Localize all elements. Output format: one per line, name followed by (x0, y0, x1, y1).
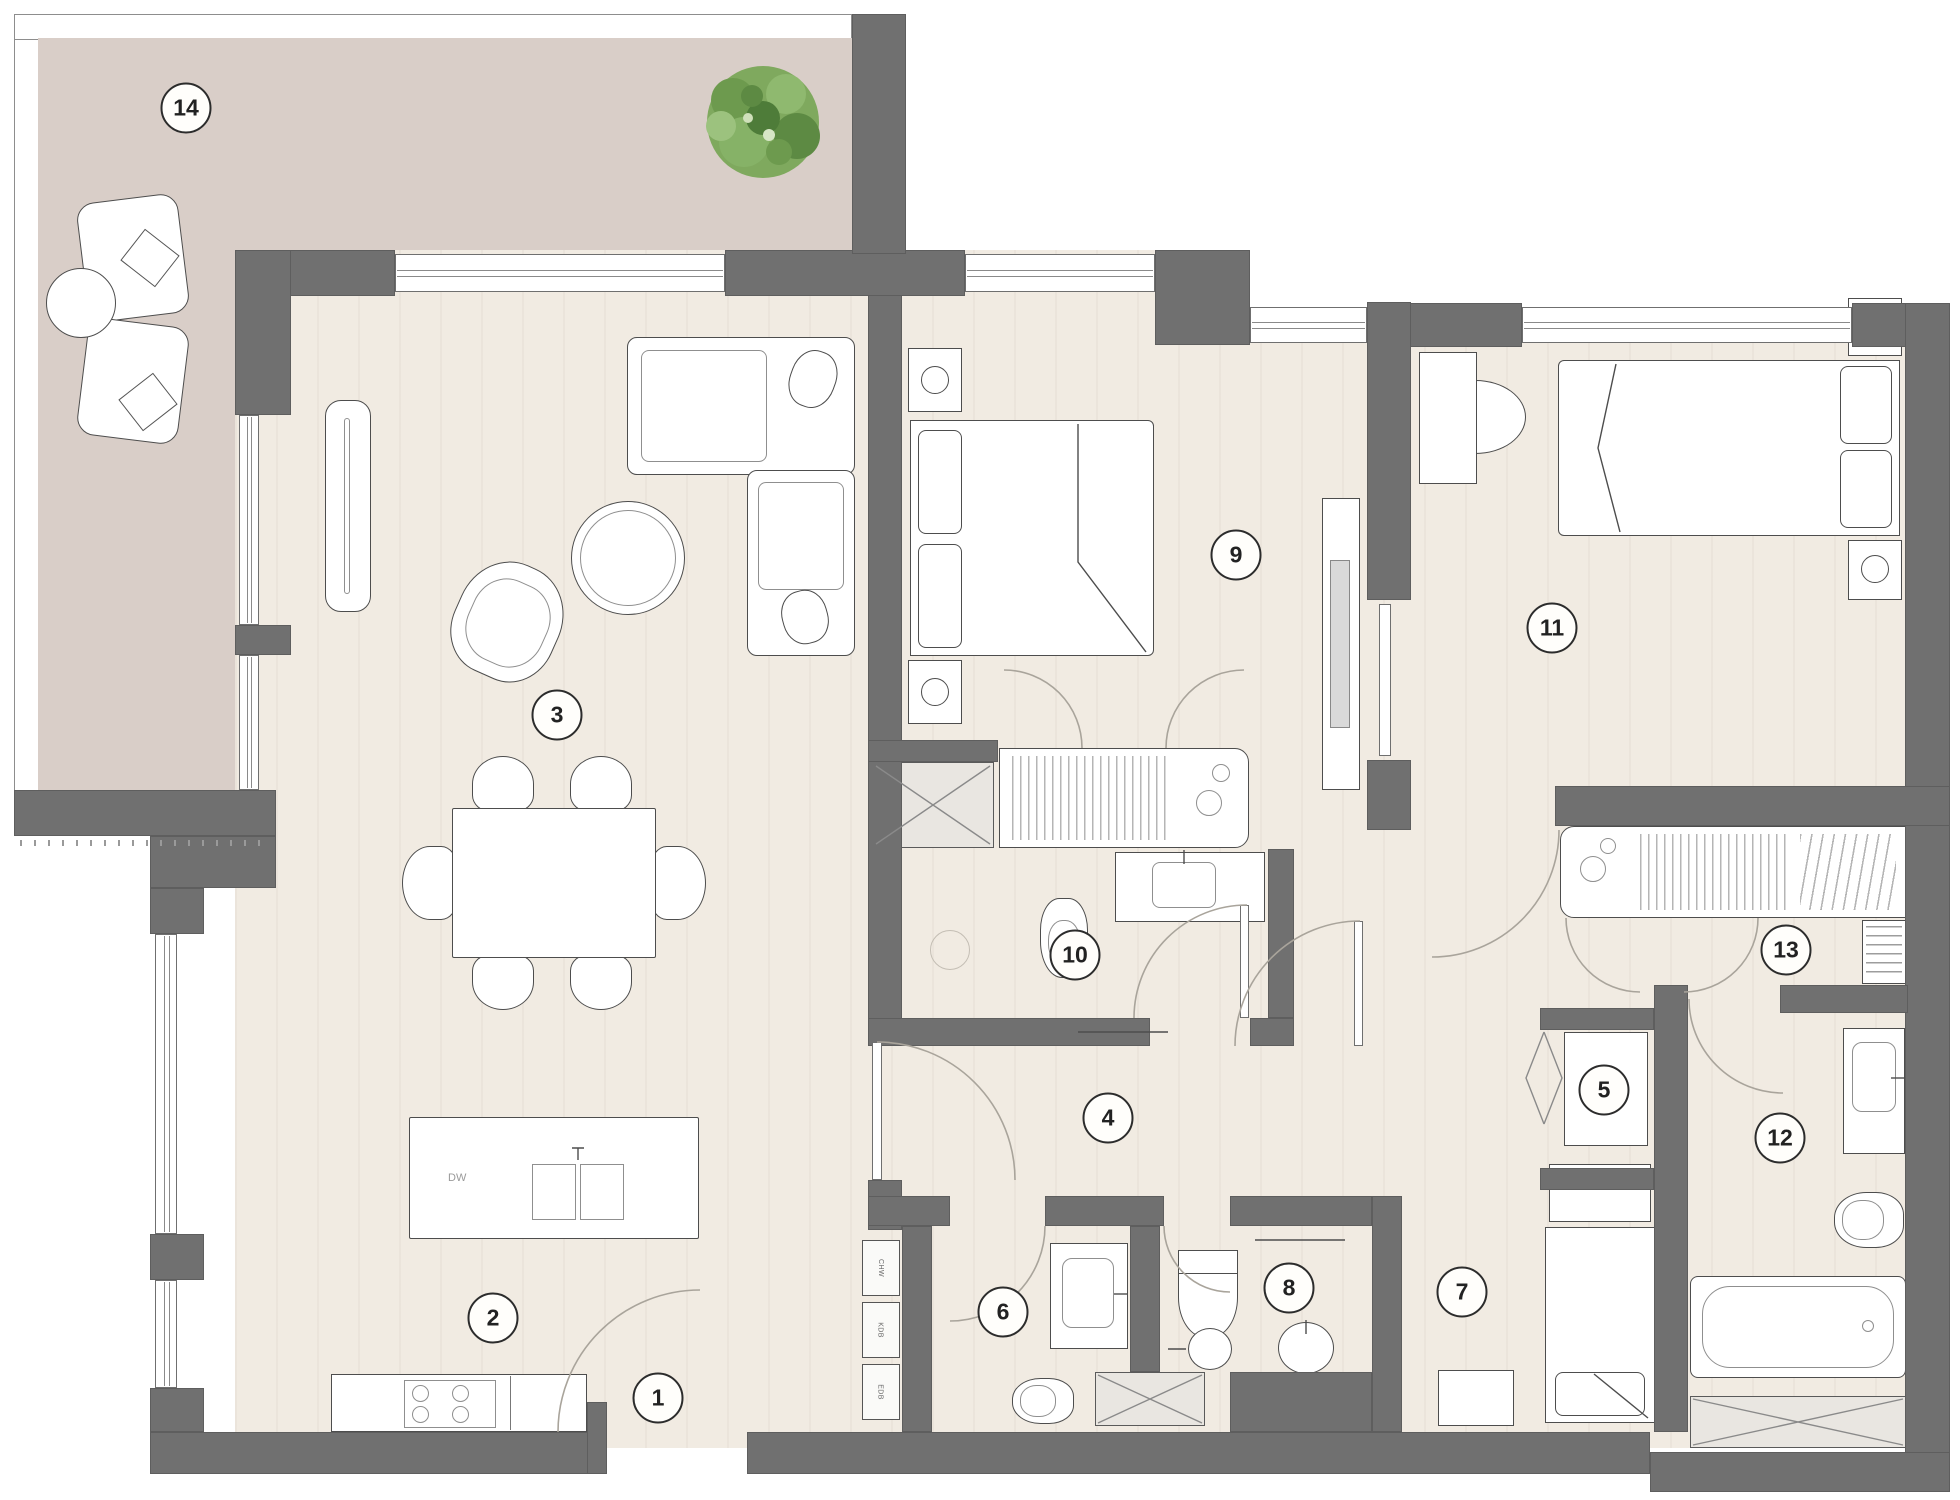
terrace-wall-hatch (20, 840, 270, 846)
room-badge-10: 10 (1050, 930, 1101, 981)
wall-bottom-left (150, 1432, 607, 1474)
wall-bath8-chunk (1230, 1372, 1372, 1432)
wardrobe13-basket (1580, 856, 1606, 882)
window-top-bedroom11 (1522, 307, 1852, 343)
bed-pillow (918, 544, 962, 648)
room-badge-4: 4 (1083, 1093, 1134, 1144)
room-badge-12: 12 (1755, 1113, 1806, 1164)
stove-burner (452, 1406, 469, 1423)
room-badge-2: 2 (468, 1293, 519, 1344)
wall-9-11-v3b (1367, 760, 1411, 830)
room-number: 12 (1767, 1125, 1793, 1152)
coffee-table-inner (580, 510, 676, 606)
stove-burner (452, 1385, 469, 1402)
room-badge-3: 3 (532, 690, 583, 741)
shelf13-lines (1866, 926, 1902, 978)
wall-bath10-right (1268, 849, 1294, 1018)
vanity6-sink (1062, 1258, 1114, 1328)
shower-tray-bath6 (1095, 1372, 1205, 1426)
room-badge-7: 7 (1437, 1267, 1488, 1318)
room-badge-8: 8 (1264, 1263, 1315, 1314)
door-leaf-hall (872, 1042, 882, 1180)
exterior-cutout-top-right (1250, 250, 1950, 307)
utility-box-label: KDB (877, 1322, 885, 1338)
terrace-side-table (46, 268, 116, 338)
wall-shower10-top (868, 740, 998, 762)
room-number: 6 (997, 1299, 1010, 1326)
window-left-living-1 (239, 415, 259, 625)
room-badge-6: 6 (978, 1287, 1029, 1338)
utility-box-label: CHW (877, 1259, 885, 1277)
wardrobe13-hanging-clothes (1640, 834, 1790, 910)
dining-chair (472, 954, 534, 1010)
door-leaf-bath10 (1240, 905, 1249, 1018)
utility-box-edb: EDB (862, 1364, 900, 1420)
wardrobe13-basket (1600, 838, 1616, 854)
wall-left-pier4 (150, 1388, 204, 1432)
toilet6-seat (1020, 1385, 1056, 1417)
dining-table (452, 808, 656, 958)
balustrade-top (14, 14, 852, 40)
wall-corridor7-right (1654, 985, 1688, 1432)
window-top-corridor11 (1250, 307, 1367, 343)
room-number: 14 (173, 95, 199, 122)
room-number: 8 (1283, 1275, 1296, 1302)
floor-plan-canvas: DW (0, 0, 1960, 1500)
dishwasher-label: DW (448, 1172, 466, 1184)
window-left-living-2 (239, 655, 259, 790)
room-number: 11 (1540, 615, 1564, 642)
island-sink-left (532, 1164, 576, 1220)
shower-tray-bath12 (1690, 1396, 1906, 1448)
wardrobe9-hanging-clothes (1012, 756, 1172, 840)
dining-chair (650, 846, 706, 920)
room-number: 5 (1598, 1077, 1611, 1104)
vanity12-sink (1852, 1042, 1896, 1112)
stove-burner (412, 1385, 429, 1402)
bed7-pillow (1555, 1372, 1645, 1416)
window-top-bedroom9 (965, 254, 1155, 292)
vanity10-sink (1152, 862, 1216, 908)
bed-pillow (1840, 450, 1892, 528)
wall-bath10-bottom-b (1250, 1018, 1294, 1046)
sofa-cushion (641, 350, 767, 462)
nightstand-lamp (1861, 555, 1889, 583)
window-left-kitchen-1 (155, 934, 177, 1234)
bed-pillow (918, 430, 962, 534)
sofa-chaise-cushion (758, 482, 844, 590)
wall-bottom-entry-pier (587, 1402, 607, 1474)
wall-bath10-bottom-a (868, 1018, 1150, 1046)
divider-hatch-ticks (908, 18, 922, 218)
dining-chair (570, 756, 632, 812)
utility-box-kdb: KDB (862, 1302, 900, 1358)
stove-burner (412, 1406, 429, 1423)
wall-baths-top-b (1045, 1196, 1164, 1226)
dining-chair (570, 954, 632, 1010)
nightstand-lamp (921, 678, 949, 706)
wall-left-pier3 (150, 1234, 204, 1280)
room-number: 4 (1102, 1105, 1115, 1132)
wall-baths-top-a (868, 1196, 950, 1226)
sliding-door-room11 (1379, 604, 1391, 756)
floor-drain-bath10 (930, 930, 970, 970)
wall-top-step (1155, 250, 1250, 345)
wall-niche-v2 (902, 1226, 932, 1432)
wall-terrace-bottom (14, 790, 276, 836)
wardrobe9-basket (1196, 790, 1222, 816)
room-badge-14: 14 (161, 83, 212, 134)
wall-living-divider-v1 (868, 295, 902, 1020)
window-left-kitchen-2 (155, 1280, 177, 1388)
wall-bottom-right (1650, 1452, 1950, 1492)
wall-9-11-v3 (1367, 302, 1411, 600)
room-badge-9: 9 (1211, 530, 1262, 581)
room-badge-11: 11 (1527, 603, 1578, 654)
wardrobe9-basket (1212, 764, 1230, 782)
window-top-living (395, 254, 725, 292)
desk-bedroom11 (1419, 352, 1477, 484)
wall-divider-13-12 (1780, 985, 1908, 1013)
wall-terrace-divider (852, 14, 906, 254)
room-badge-1: 1 (633, 1373, 684, 1424)
wall-closet5-bottom (1540, 1168, 1654, 1190)
balustrade-left (14, 14, 40, 836)
room-number: 2 (487, 1305, 500, 1332)
wall-right (1905, 303, 1950, 1492)
wall-left-upper (235, 250, 291, 415)
toilet12-seat (1842, 1200, 1884, 1240)
wall-closet5-top (1540, 1008, 1654, 1030)
island-sink-right (580, 1164, 624, 1220)
utility-box-chw: CHW (862, 1240, 900, 1296)
counter-divider (510, 1376, 511, 1430)
dining-chair (402, 846, 458, 920)
wardrobe13-hanging-clothes (1800, 834, 1896, 910)
room-number: 3 (551, 702, 564, 729)
wall-left-pier2 (150, 888, 204, 934)
room-badge-13: 13 (1761, 925, 1812, 976)
nightstand-lamp (921, 366, 949, 394)
wall-bottom-mid (747, 1432, 1650, 1474)
room-number: 13 (1773, 937, 1799, 964)
sink-round-bath8 (1278, 1322, 1334, 1374)
bed-pillow (1840, 366, 1892, 444)
room-number: 7 (1456, 1279, 1469, 1306)
room-badge-5: 5 (1579, 1065, 1630, 1116)
dining-chair (472, 756, 534, 812)
closet-corridor9-panel (1330, 560, 1350, 728)
console-inner-line (344, 418, 350, 594)
bathtub-drain (1862, 1320, 1874, 1332)
wall-left-pier (235, 625, 291, 655)
room-number: 10 (1062, 942, 1088, 969)
room-number: 1 (652, 1385, 665, 1412)
wall-top-b (725, 250, 965, 296)
bidet-bath8 (1188, 1328, 1232, 1370)
side-table-room7-low (1438, 1370, 1514, 1426)
wall-room11-bottom (1555, 786, 1950, 826)
door-leaf-bedroom9 (1354, 921, 1363, 1046)
toilet8-tank (1178, 1250, 1238, 1274)
wall-divider-6-8 (1130, 1226, 1160, 1372)
room-number: 9 (1230, 542, 1243, 569)
wall-baths-top-c (1230, 1196, 1372, 1226)
utility-box-label: EDB (877, 1384, 885, 1400)
wall-divider-8-7 (1372, 1196, 1402, 1432)
